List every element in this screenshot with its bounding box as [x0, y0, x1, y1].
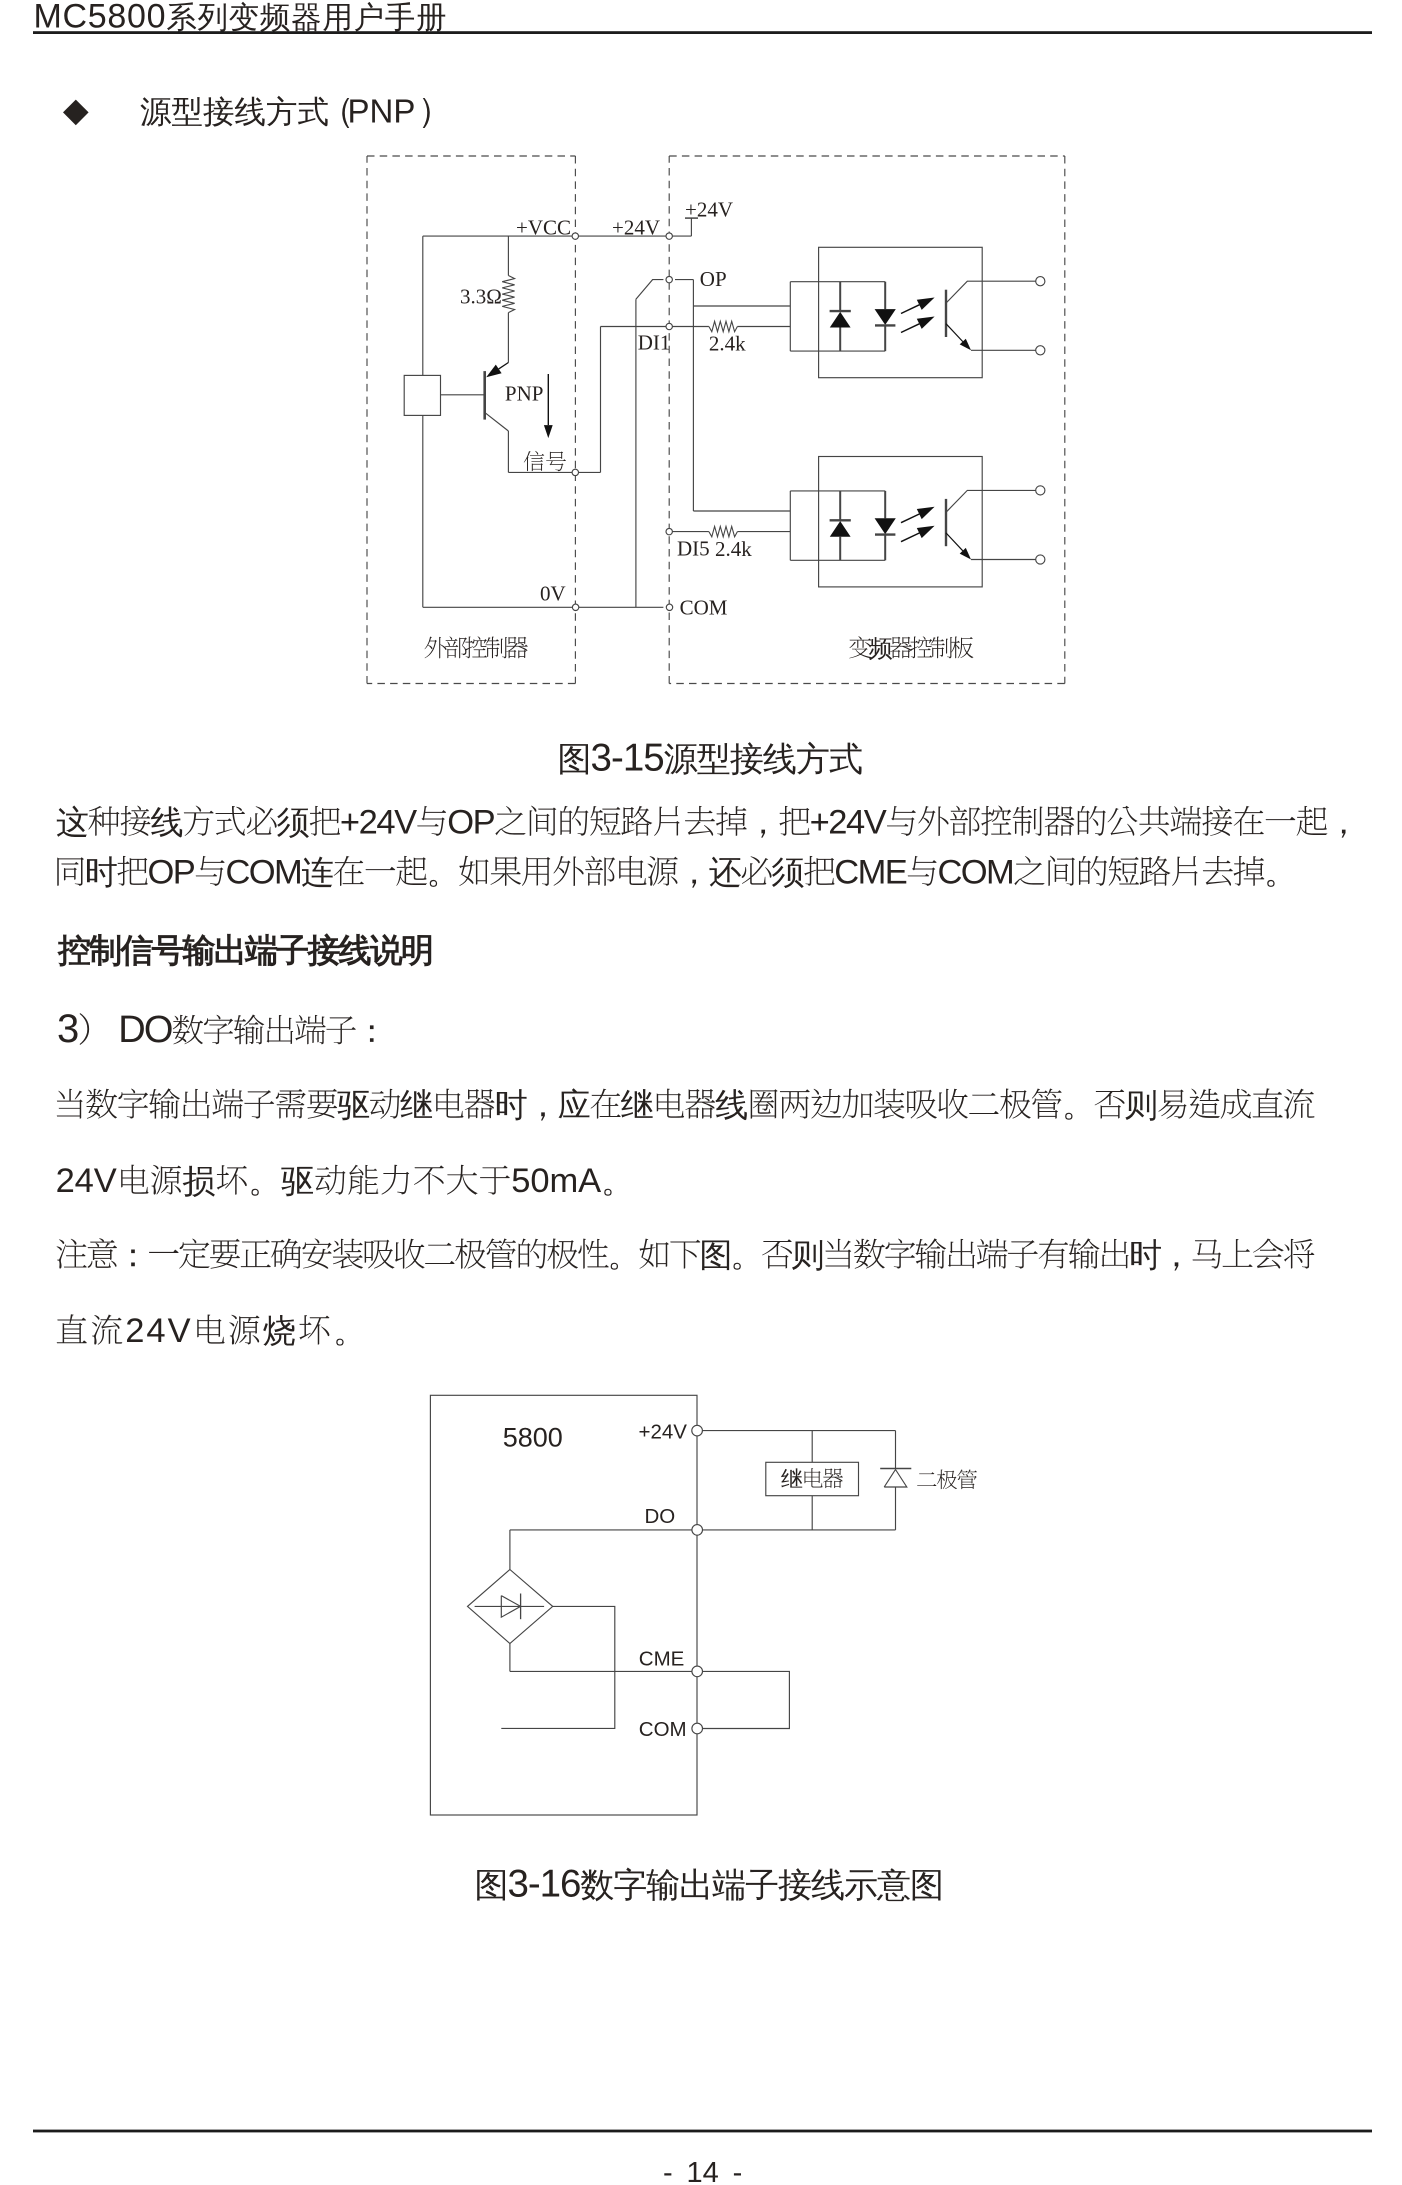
svg-text:DI1: DI1 [638, 331, 671, 355]
svg-text:+24V: +24V [340, 803, 417, 841]
svg-text:CME: CME [639, 1647, 685, 1670]
svg-text:5800: 5800 [503, 1423, 563, 1453]
svg-text:3-16: 3-16 [508, 1863, 581, 1906]
svg-text:COM: COM [639, 1718, 687, 1741]
svg-text:COM: COM [226, 853, 302, 891]
svg-text:CME: CME [834, 853, 906, 891]
svg-text:-: - [663, 2157, 673, 2185]
svg-text:Ω: Ω [486, 285, 502, 309]
svg-text:3.3: 3.3 [460, 285, 486, 309]
svg-text:OP: OP [447, 803, 494, 841]
svg-text:0V: 0V [540, 582, 566, 606]
svg-text:OP: OP [700, 267, 727, 291]
svg-text:-: - [733, 2157, 743, 2185]
svg-text:DO: DO [645, 1505, 676, 1528]
svg-text:+24V: +24V [685, 197, 733, 221]
svg-text:50mA: 50mA [511, 1162, 601, 1200]
svg-text:COM: COM [938, 853, 1014, 891]
svg-text:24V: 24V [56, 1162, 117, 1200]
svg-text:DI5: DI5 [677, 537, 710, 561]
svg-text:MC5800: MC5800 [34, 0, 167, 36]
svg-text:+24V: +24V [639, 1421, 688, 1444]
svg-text:COM: COM [680, 596, 728, 620]
svg-text:DO: DO [110, 1009, 172, 1051]
svg-text:3: 3 [57, 1007, 78, 1051]
svg-text:2.4k: 2.4k [709, 332, 746, 356]
svg-text:+24V: +24V [612, 215, 660, 239]
svg-text:24V: 24V [125, 1312, 193, 1350]
svg-text:2.4k: 2.4k [715, 537, 752, 561]
svg-text:PNP: PNP [505, 382, 544, 406]
svg-text:OP: OP [148, 853, 195, 891]
svg-text:14: 14 [673, 2157, 733, 2185]
svg-text:3-15: 3-15 [591, 737, 664, 780]
svg-text:PNP: PNP [348, 93, 416, 130]
svg-text:+VCC: +VCC [516, 215, 571, 239]
svg-text:+24V: +24V [810, 803, 887, 841]
